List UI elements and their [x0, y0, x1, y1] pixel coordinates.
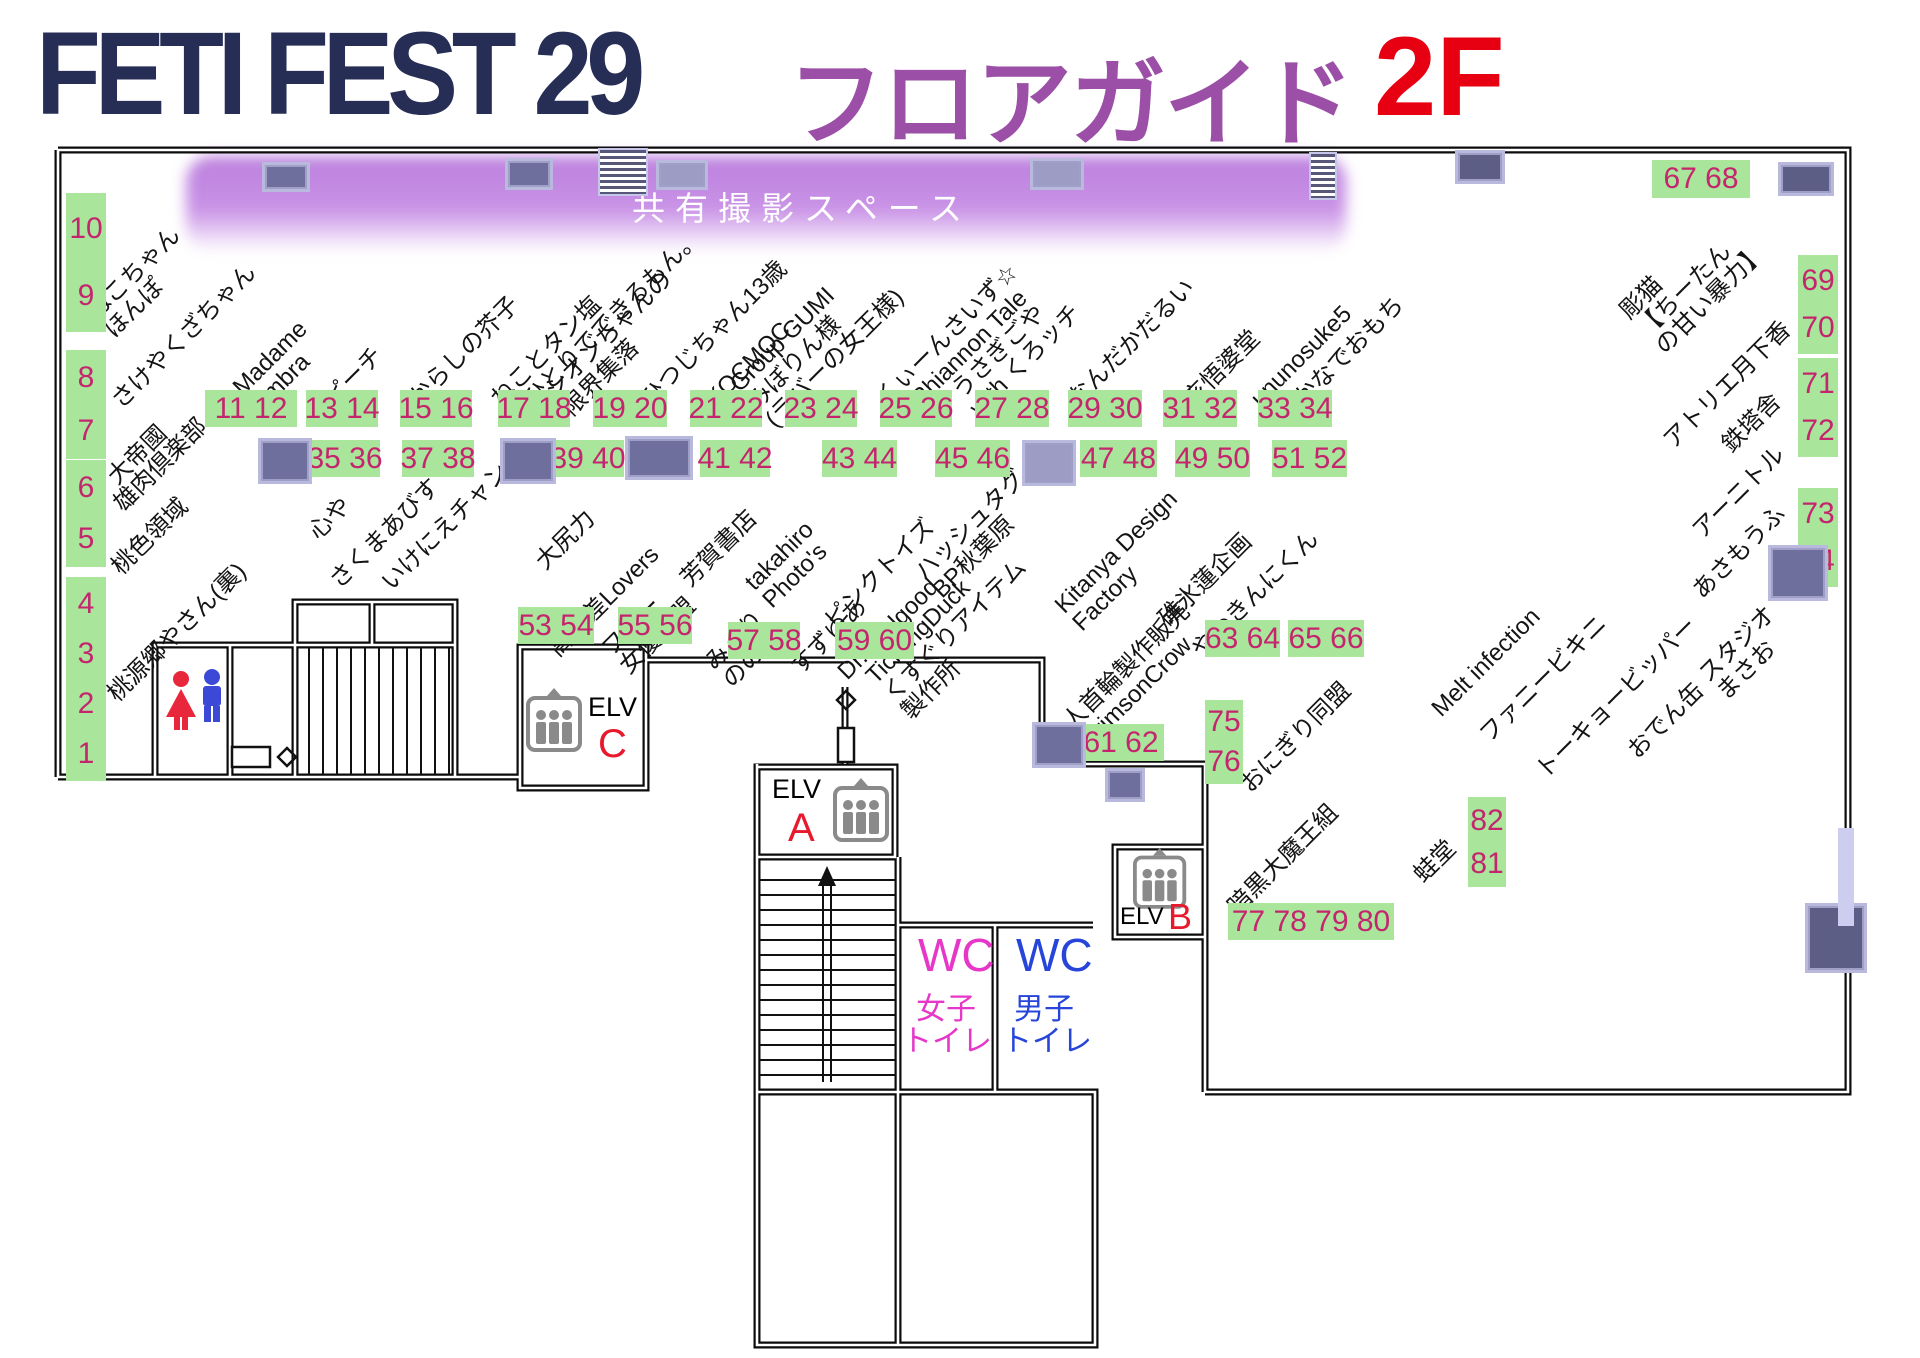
- booth-number-label: 4321: [66, 577, 106, 781]
- pillar: [1455, 150, 1505, 184]
- booth-number: 76: [1207, 745, 1240, 779]
- booth-number-label: 25 26: [880, 390, 952, 427]
- booth-number-label: 7576: [1205, 700, 1243, 784]
- pillar: [598, 148, 648, 196]
- booth-number-label: 57 58: [728, 622, 800, 659]
- booth-number: 73: [1801, 497, 1834, 531]
- booth-number: 69: [1801, 264, 1834, 298]
- wc-male-label: WC: [1016, 928, 1093, 982]
- booth-number-label: 55 56: [618, 607, 692, 644]
- booth-number-label: 21 22: [690, 390, 762, 427]
- booth-number-label: 27 28: [975, 390, 1049, 427]
- pillar: [656, 160, 708, 190]
- pillar: [1030, 158, 1084, 190]
- booth-number-label: 109: [66, 193, 106, 332]
- pillar: [258, 438, 312, 484]
- booth-number: 6: [78, 471, 95, 505]
- booth-number-label: 77 78 79 80: [1228, 903, 1394, 940]
- booth-number-label: 63 64: [1205, 620, 1280, 657]
- sink-fixture: [232, 747, 270, 767]
- elevator-b-label: ELV: [1120, 903, 1164, 931]
- booth-number: 82: [1470, 804, 1503, 838]
- booth-number-label: 11 12: [205, 390, 297, 427]
- stairs-up-arrow: [818, 866, 836, 886]
- booth-number-label: 29 30: [1068, 390, 1142, 427]
- pillar: [1838, 828, 1854, 926]
- pillar: [1022, 440, 1076, 486]
- booth-number: 1: [78, 737, 95, 771]
- booth-number-label: 47 48: [1080, 440, 1157, 477]
- pillar: [505, 158, 553, 190]
- stairs-rail: [823, 884, 831, 1082]
- booth-number-label: 45 46: [935, 440, 1010, 477]
- pillar: [1032, 722, 1086, 768]
- elevator-a-letter: A: [788, 806, 815, 851]
- booth-number: 71: [1801, 367, 1834, 401]
- booth-number: 8: [78, 361, 95, 395]
- booth-number-label: 39 40: [552, 440, 624, 477]
- booth-number-label: 15 16: [400, 390, 472, 427]
- booth-number-label: 19 20: [593, 390, 667, 427]
- booth-number: 10: [69, 212, 102, 246]
- booth-number-label: 17 18: [498, 390, 570, 427]
- elevator-c-letter: C: [598, 722, 627, 767]
- pillar: [262, 162, 310, 192]
- booth-number-label: 51 52: [1272, 440, 1347, 477]
- fixture-rect: [838, 728, 854, 762]
- floor-guide-page: FETI FEST 29 フロアガイド 2F 共有撮影スペース: [0, 0, 1920, 1358]
- booth-number-label: 41 42: [700, 440, 770, 477]
- booth-number-label: 7172: [1798, 358, 1838, 457]
- elevator-a-icon: [835, 778, 887, 840]
- booth-number: 81: [1470, 847, 1503, 881]
- booth-number-label: 13 14: [306, 390, 378, 427]
- pillar: [625, 436, 693, 480]
- booth-number: 70: [1801, 311, 1834, 345]
- booth-number: 75: [1207, 705, 1240, 739]
- elevator-a-label: ELV: [772, 774, 821, 805]
- booth-number-label: 33 34: [1258, 390, 1332, 427]
- booth-number-label: 35 36: [310, 440, 380, 477]
- pillar: [1778, 162, 1834, 196]
- male-toilet-icon: [203, 669, 221, 722]
- booth-number: 7: [78, 414, 95, 448]
- elevator-b-letter: B: [1168, 896, 1192, 938]
- female-toilet-icon: [166, 671, 196, 730]
- pillar: [1105, 768, 1145, 802]
- pillar: [1805, 903, 1867, 973]
- pillar: [1768, 545, 1828, 601]
- booth-number-label: 23 24: [785, 390, 857, 427]
- booth-number-label: 59 60: [835, 622, 914, 659]
- stairs-center: [760, 880, 896, 1075]
- wc-female-label: WC: [918, 928, 995, 982]
- pillar: [500, 438, 556, 484]
- booth-number-label: 65 66: [1288, 620, 1364, 657]
- elevator-c-icon: [528, 688, 580, 750]
- booth-number: 9: [78, 279, 95, 313]
- booth-number-label: 65: [66, 460, 106, 567]
- booth-number-label: 49 50: [1175, 440, 1250, 477]
- stairs-topleft: [309, 648, 449, 775]
- booth-number-label: 6970: [1798, 255, 1838, 354]
- booth-number-label: 53 54: [518, 607, 594, 644]
- booth-number: 72: [1801, 414, 1834, 448]
- booth-number: 2: [78, 687, 95, 721]
- booth-number: 5: [78, 522, 95, 556]
- elevator-c-label: ELV: [588, 692, 637, 723]
- booth-number-label: 37 38: [402, 440, 474, 477]
- wc-female-line2: トイレ: [902, 1016, 992, 1060]
- booth-number-label: 43 44: [822, 440, 897, 477]
- booth-number-label: 31 32: [1163, 390, 1237, 427]
- booth-number: 3: [78, 637, 95, 671]
- booth-number-label: 8281: [1468, 797, 1506, 887]
- booth-number: 4: [78, 587, 95, 621]
- pillar: [1309, 152, 1337, 200]
- wc-male-line2: トイレ: [1002, 1016, 1092, 1060]
- booth-number-label: 87: [66, 350, 106, 459]
- booth-number-label: 61 62: [1078, 724, 1164, 761]
- booth-number-label: 67 68: [1652, 160, 1750, 198]
